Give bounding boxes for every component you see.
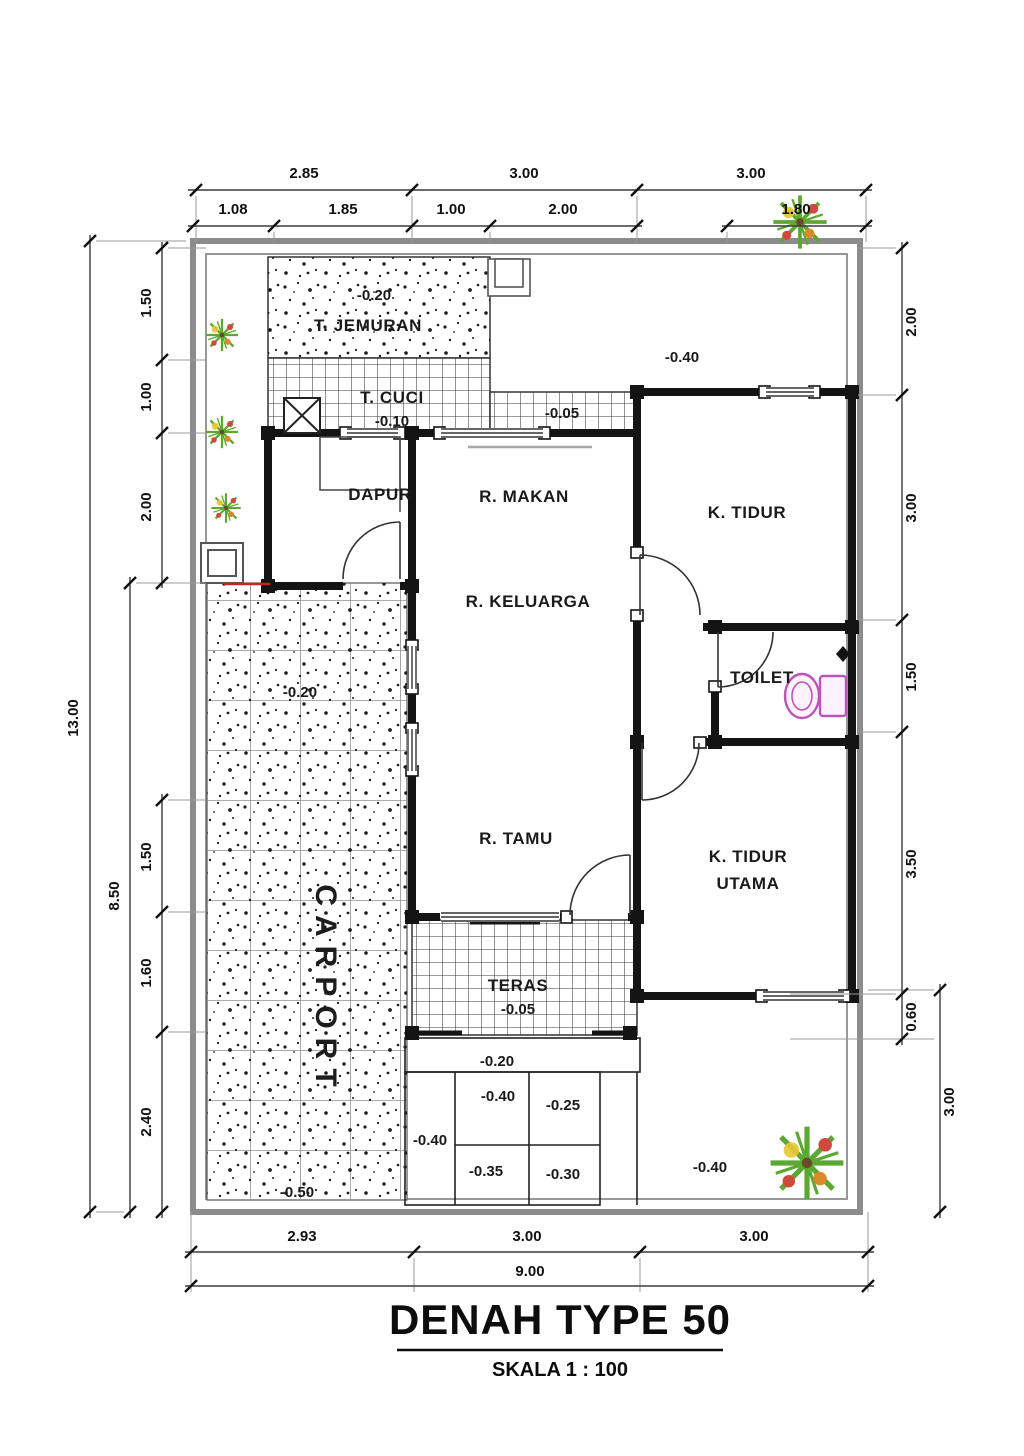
planter-box xyxy=(201,543,243,583)
dim-left-upper-0: 1.50 xyxy=(138,288,155,317)
dim-bottom1-1: 3.00 xyxy=(512,1228,541,1245)
dim-left-mid: 8.50 xyxy=(106,881,123,910)
room-label-tidur-utama-2: UTAMA xyxy=(716,874,779,893)
windows xyxy=(347,387,844,1001)
plant-icon xyxy=(211,493,240,522)
drawing-title: DENAH TYPE 50 xyxy=(389,1296,731,1343)
step-d-elevation: -0.30 xyxy=(546,1166,580,1183)
room-label-dapur: DAPUR xyxy=(348,485,411,504)
window-family-1 xyxy=(407,646,417,689)
dim-top1-2: 3.00 xyxy=(736,165,765,182)
cuci-elevation: -0.10 xyxy=(375,413,409,430)
dim-top2-4: 1.80 xyxy=(781,201,810,218)
dim-top1-0: 2.85 xyxy=(289,165,318,182)
window-master xyxy=(763,991,844,1001)
carport-elevation-top: -0.20 xyxy=(283,684,317,701)
room-label-jemuran: T. JEMURAN xyxy=(314,316,422,335)
yard-bottom-elevation: -0.40 xyxy=(693,1159,727,1176)
plant-icon xyxy=(771,1127,844,1200)
carport-elevation-bottom: -0.50 xyxy=(280,1184,314,1201)
step-b-elevation: -0.25 xyxy=(546,1097,580,1114)
step-c-elevation: -0.35 xyxy=(469,1163,503,1180)
dim-right-0: 2.00 xyxy=(903,307,920,336)
toilet-icon xyxy=(785,674,846,718)
step-band xyxy=(405,1038,640,1072)
dim-left-total: 13.00 xyxy=(65,699,82,737)
dim-right-3: 3.50 xyxy=(903,849,920,878)
floor-plan-page: 2.85 3.00 3.00 1.08 1.85 1.00 2.00 1.80 … xyxy=(0,0,1024,1456)
dim-left-lower-0: 1.50 xyxy=(138,842,155,871)
hall-elevation: -0.05 xyxy=(545,405,579,422)
step-left-elevation: -0.40 xyxy=(413,1132,447,1149)
dim-bottom1-0: 2.93 xyxy=(287,1228,316,1245)
room-label-makan: R. MAKAN xyxy=(479,487,569,506)
window-family-2 xyxy=(407,729,417,771)
drawing-scale: SKALA 1 : 100 xyxy=(492,1359,628,1381)
dim-top2-1: 1.85 xyxy=(328,201,357,218)
room-label-carport: CARPORT xyxy=(309,884,342,1095)
dim-bottom-total: 9.00 xyxy=(515,1263,544,1280)
shower-marker-icon xyxy=(836,646,850,662)
room-label-cuci: T. CUCI xyxy=(360,388,424,407)
band-elevation: -0.20 xyxy=(480,1053,514,1070)
door-kitchen xyxy=(343,522,400,579)
dim-left-upper-2: 2.00 xyxy=(138,492,155,521)
dim-left-lower-2: 2.40 xyxy=(138,1107,155,1136)
room-label-toilet: TOILET xyxy=(730,668,794,687)
dim-right-4: 0.60 xyxy=(903,1002,920,1031)
dim-left-upper-1: 1.00 xyxy=(138,382,155,411)
jemuran-floor xyxy=(268,257,490,358)
dim-top2-0: 1.08 xyxy=(218,201,247,218)
dim-right-1: 3.00 xyxy=(903,493,920,522)
door-bedroom xyxy=(640,555,700,615)
dim-bottom1-2: 3.00 xyxy=(739,1228,768,1245)
dim-right-outer: 3.00 xyxy=(941,1087,958,1116)
dim-right-2: 1.50 xyxy=(903,662,920,691)
carport-floor xyxy=(207,583,407,1200)
wall-niche xyxy=(488,259,530,296)
dim-top1-1: 3.00 xyxy=(509,165,538,182)
door-master xyxy=(642,743,699,800)
dim-top2-3: 2.00 xyxy=(548,201,577,218)
jemuran-elevation: -0.20 xyxy=(357,287,391,304)
dimension-labels: 2.85 3.00 3.00 1.08 1.85 1.00 2.00 1.80 … xyxy=(65,165,958,1280)
window-bedroom xyxy=(766,387,814,397)
dim-top2-2: 1.00 xyxy=(436,201,465,218)
jamb-boxes xyxy=(340,386,850,1002)
room-label-tidur: K. TIDUR xyxy=(708,503,786,522)
plant-icon xyxy=(206,416,238,448)
room-label-tamu: R. TAMU xyxy=(479,829,553,848)
yard-top-elevation: -0.40 xyxy=(665,349,699,366)
entry-steps xyxy=(405,1038,640,1205)
floor-plan-canvas: 2.85 3.00 3.00 1.08 1.85 1.00 2.00 1.80 … xyxy=(0,0,1024,1456)
plant-icon xyxy=(206,319,238,351)
room-label-teras: TERAS xyxy=(488,976,549,995)
room-label-keluarga: R. KELUARGA xyxy=(466,592,591,611)
room-label-tidur-utama-1: K. TIDUR xyxy=(709,847,787,866)
title-block: DENAH TYPE 50 SKALA 1 : 100 xyxy=(389,1296,731,1381)
window-dining xyxy=(441,428,543,438)
dim-left-lower-1: 1.60 xyxy=(138,958,155,987)
washing-machine-icon xyxy=(284,398,320,433)
teras-elevation: -0.05 xyxy=(501,1001,535,1018)
window-living xyxy=(441,912,559,922)
step-a-elevation: -0.40 xyxy=(481,1088,515,1105)
door-front xyxy=(570,855,630,915)
